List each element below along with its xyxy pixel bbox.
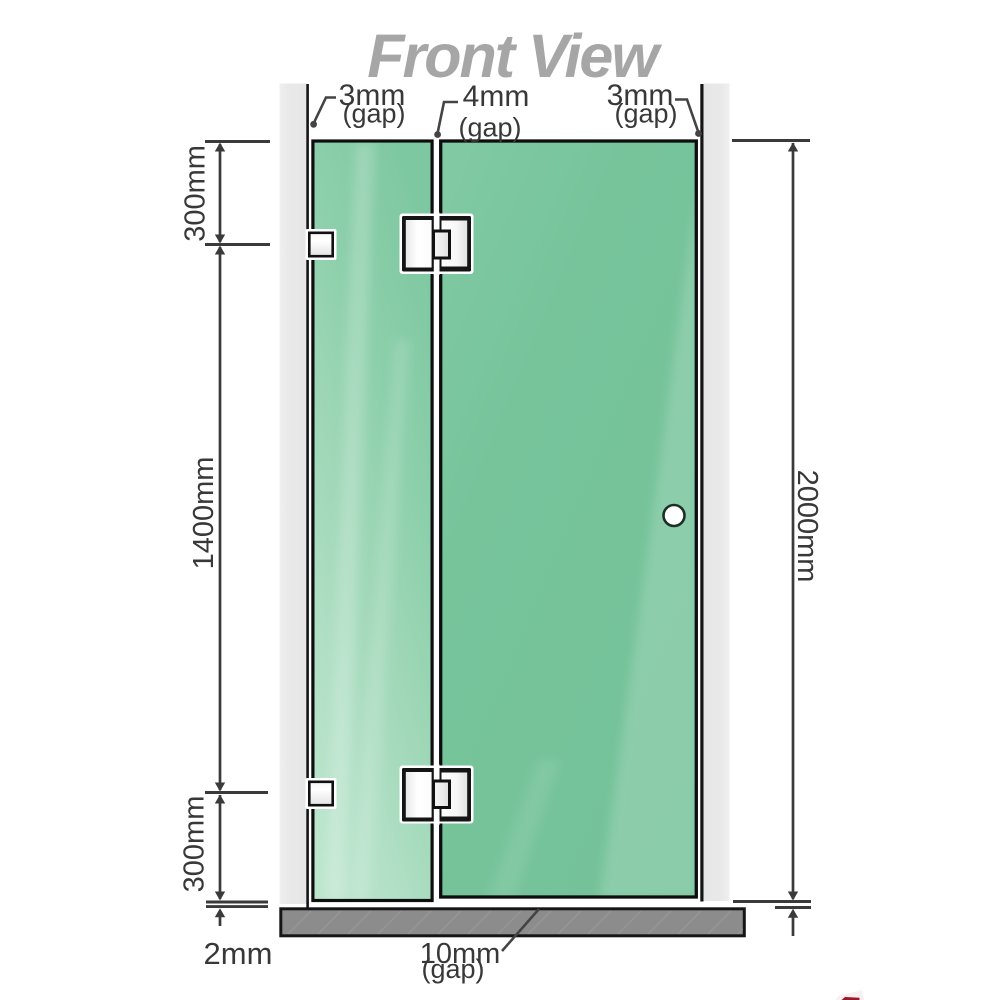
svg-text:2000mm: 2000mm <box>791 470 823 583</box>
svg-text:4mm: 4mm <box>463 80 530 113</box>
svg-text:1400mm: 1400mm <box>188 457 220 570</box>
svg-text:2mm: 2mm <box>204 936 273 971</box>
svg-text:300mm: 300mm <box>179 796 211 893</box>
svg-text:(gap): (gap) <box>342 99 405 129</box>
svg-text:300mm: 300mm <box>180 145 212 242</box>
svg-text:(gap): (gap) <box>458 113 521 143</box>
svg-text:(gap): (gap) <box>614 99 677 129</box>
svg-text:(gap): (gap) <box>421 954 484 984</box>
